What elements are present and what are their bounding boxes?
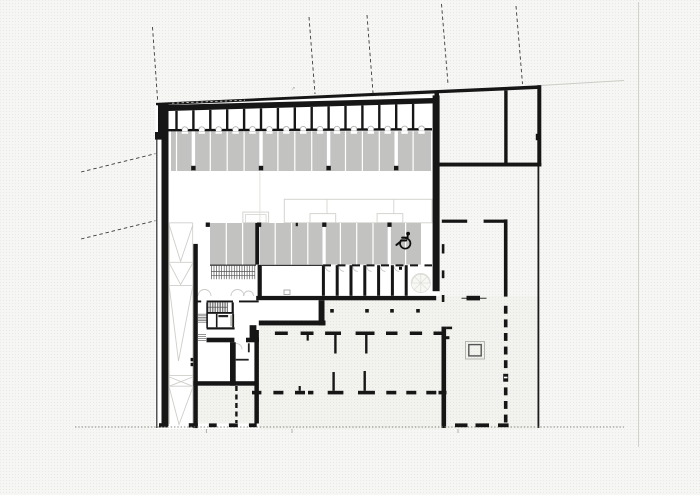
- svg-text:↗: ↗: [291, 86, 295, 92]
